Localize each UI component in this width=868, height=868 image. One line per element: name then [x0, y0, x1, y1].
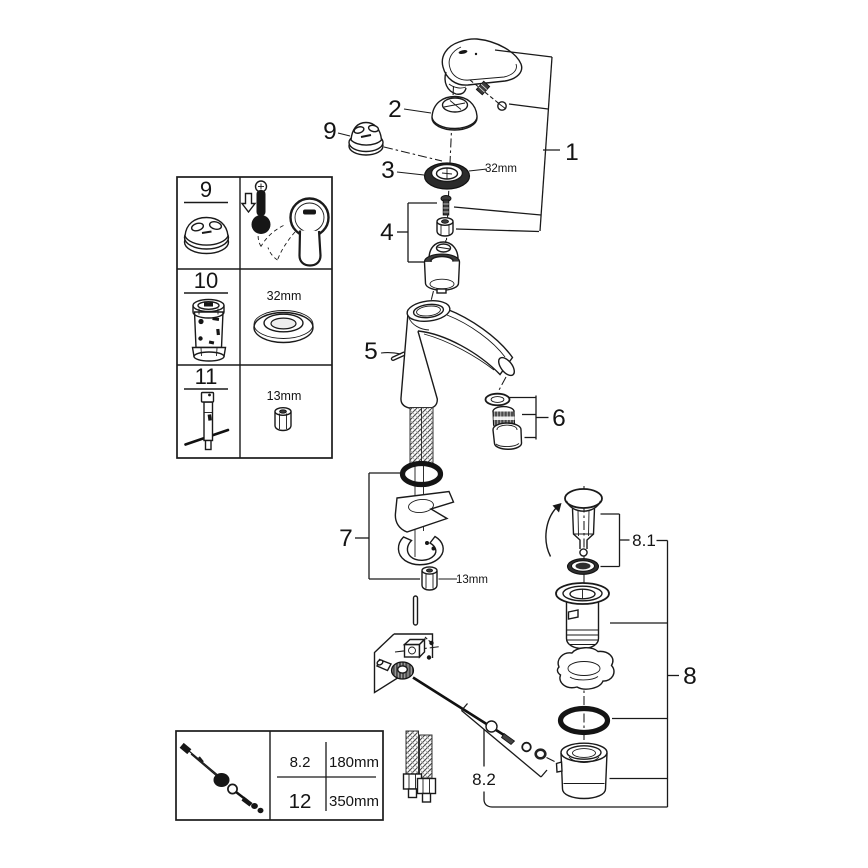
supply-hose-ends — [404, 731, 436, 802]
size-table-row2-ref: 12 — [289, 790, 312, 813]
callout-8: 8 — [683, 663, 697, 690]
box-row10-number: 10 — [194, 268, 218, 293]
exploded-parts-diagram-page: 1 2 9 3 32mm — [0, 0, 868, 868]
mounting-nut-13mm — [422, 567, 437, 590]
box-row11-number: 11 — [195, 364, 218, 389]
callout-8-2: 8.2 — [472, 770, 496, 789]
box-row10-dim: 32mm — [267, 289, 302, 303]
plug-seal-drawing — [568, 559, 599, 575]
dim-label-32mm: 32mm — [485, 163, 517, 175]
size-reference-box: 8.2 180mm 12 350mm — [176, 731, 383, 820]
callout-3: 3 — [381, 157, 395, 184]
faucet-exploded-diagram: 1 2 9 3 32mm — [0, 0, 868, 868]
callout-7: 7 — [339, 525, 353, 552]
callout-5: 5 — [364, 338, 378, 365]
callout-8-1: 8.1 — [632, 531, 656, 550]
box-nut-13mm-drawing — [275, 408, 291, 431]
callout-9: 9 — [323, 118, 337, 145]
callout-1: 1 — [565, 139, 579, 166]
background — [0, 0, 868, 868]
box-row9-number: 9 — [200, 177, 212, 202]
parts-reference-box: 9 10 — [177, 177, 332, 458]
box-limiter-cap-drawing — [185, 218, 229, 254]
cartridge-nut-drawing — [437, 218, 453, 236]
dim-label-13mm: 13mm — [456, 574, 488, 586]
callout-2: 2 — [388, 96, 402, 123]
drain-body-drawing — [557, 743, 608, 798]
size-table-row2-length: 350mm — [329, 793, 379, 810]
callout-4: 4 — [380, 219, 394, 246]
callout-6: 6 — [552, 405, 566, 432]
size-table-row1-length: 180mm — [329, 754, 379, 771]
size-table-row1-ref: 8.2 — [290, 754, 311, 771]
box-cartridge-drawing — [193, 300, 226, 362]
thermometer-icon — [257, 190, 266, 216]
box-row11-dim: 13mm — [267, 389, 302, 403]
pull-rod-pin — [414, 596, 418, 625]
